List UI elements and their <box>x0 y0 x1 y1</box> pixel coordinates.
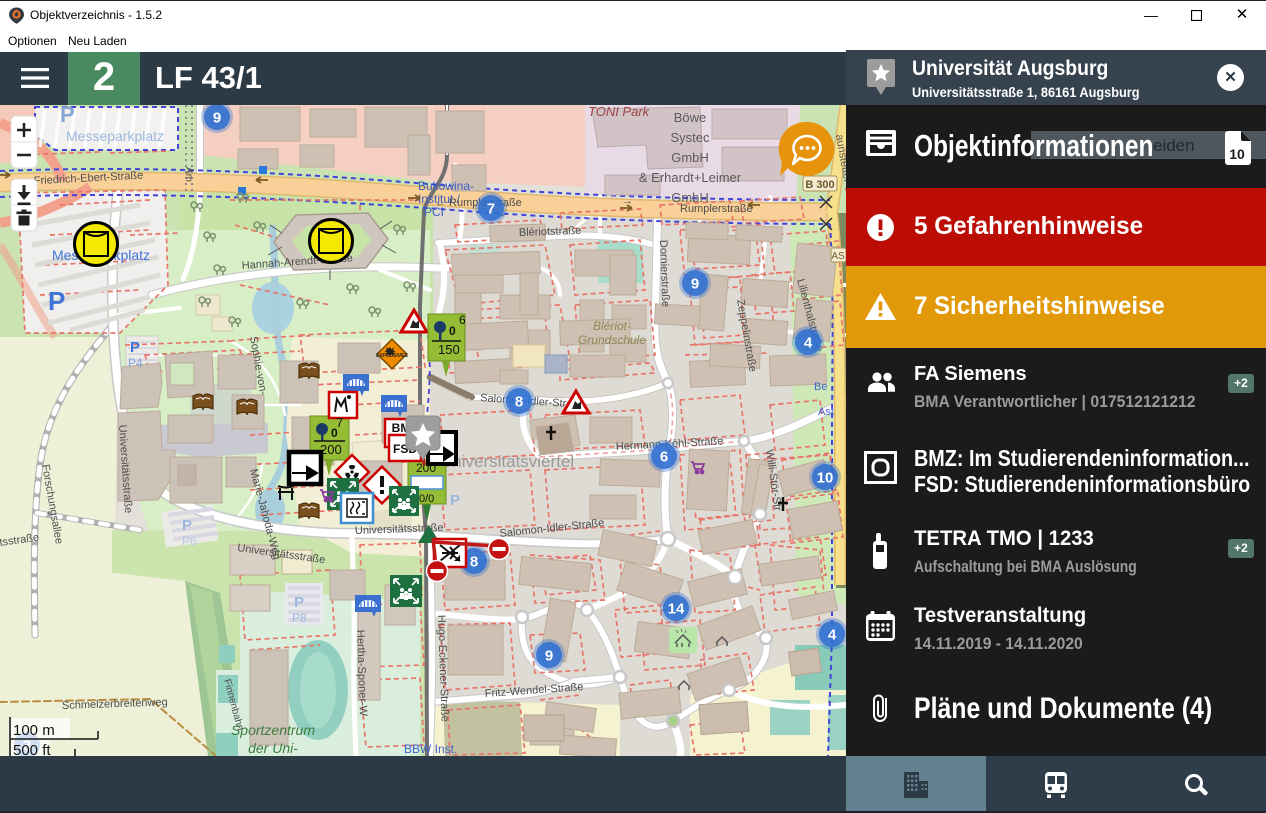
svg-text:Grundschule: Grundschule <box>578 333 646 347</box>
svg-text:P: P <box>182 517 192 534</box>
svg-text:4: 4 <box>804 335 813 352</box>
svg-text:P: P <box>294 594 304 611</box>
svg-text:Am: Am <box>183 167 194 182</box>
svg-text:P: P <box>450 492 460 509</box>
svg-text:& Erhardt+Leimer: & Erhardt+Leimer <box>639 170 742 185</box>
svg-text:0: 0 <box>449 324 456 338</box>
svg-text:P4: P4 <box>128 356 143 370</box>
svg-text:4: 4 <box>828 627 837 644</box>
svg-text:AS: AS <box>831 251 845 262</box>
svg-text:Messeparkplatz: Messeparkplatz <box>66 128 164 144</box>
svg-text:200: 200 <box>320 442 342 457</box>
svg-text:P: P <box>130 339 140 356</box>
svg-text:Universitätsviertel: Universitätsviertel <box>440 452 574 471</box>
svg-text:Böwe: Böwe <box>674 110 707 125</box>
svg-text:Sportzentrum: Sportzentrum <box>231 722 315 738</box>
svg-text:Ast: Ast <box>818 406 834 418</box>
svg-text:6: 6 <box>459 313 466 327</box>
svg-text:8: 8 <box>470 554 478 571</box>
svg-text:500 ft: 500 ft <box>13 742 51 756</box>
svg-text:PCI: PCI <box>424 205 444 219</box>
svg-text:Blériot-: Blériot- <box>593 319 631 333</box>
svg-text:Systec: Systec <box>670 130 710 145</box>
svg-text:der Uni-: der Uni- <box>248 740 298 756</box>
svg-text:7: 7 <box>487 201 495 218</box>
svg-text:9: 9 <box>691 276 699 293</box>
svg-text:10: 10 <box>817 470 834 487</box>
svg-text:100 m: 100 m <box>13 722 55 739</box>
svg-text:Institut /: Institut / <box>418 192 461 206</box>
svg-text:9: 9 <box>545 648 553 665</box>
svg-text:Blériotstraße: Blériotstraße <box>519 225 582 239</box>
svg-text:Dornierstraße: Dornierstraße <box>657 240 671 308</box>
svg-text:6: 6 <box>660 449 668 466</box>
svg-text:BBW Inst.: BBW Inst. <box>404 742 457 756</box>
svg-text:150: 150 <box>438 342 460 357</box>
svg-text:9: 9 <box>213 110 221 127</box>
svg-text:10: 10 <box>1229 146 1245 162</box>
svg-text:P8: P8 <box>292 611 307 625</box>
svg-text:0/0: 0/0 <box>419 493 434 505</box>
svg-text:P6: P6 <box>182 534 197 548</box>
svg-text:B 300: B 300 <box>805 179 834 191</box>
svg-text:Bukowina-: Bukowina- <box>418 179 474 193</box>
svg-text:7: 7 <box>336 415 343 430</box>
svg-text:P: P <box>60 105 75 127</box>
svg-text:TONI Park: TONI Park <box>588 105 651 119</box>
svg-text:Be: Be <box>814 381 827 393</box>
svg-text:GmbH: GmbH <box>671 190 709 205</box>
svg-text:P: P <box>48 286 65 316</box>
svg-text:14: 14 <box>668 601 685 618</box>
svg-text:GmbH: GmbH <box>671 150 709 165</box>
svg-text:8: 8 <box>515 394 523 411</box>
